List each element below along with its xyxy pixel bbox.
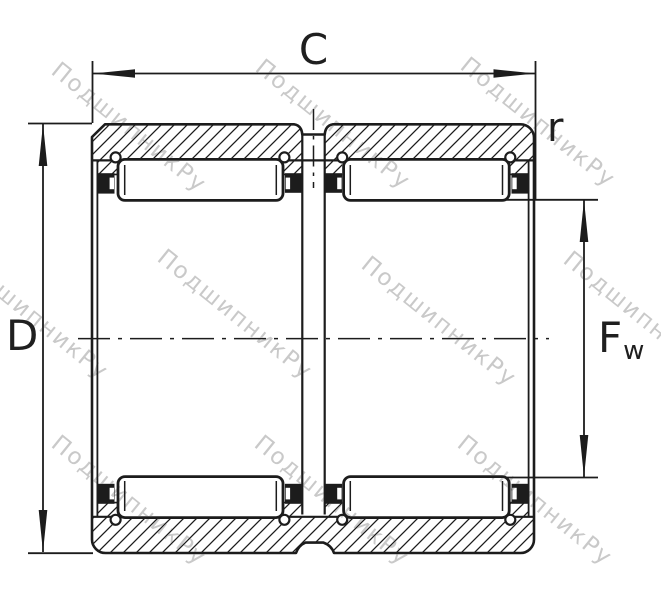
- needle-roller: [344, 159, 510, 200]
- bearing-cross-section-drawing: C D r Fw ПодшипникРу ПодшипникРу Подшипн…: [0, 0, 661, 605]
- arrowhead: [39, 124, 48, 166]
- dim-label-outer-diameter-D: D: [6, 311, 38, 360]
- arrowhead: [93, 69, 135, 77]
- needle-roller: [118, 477, 283, 518]
- arrowhead: [580, 435, 589, 477]
- needle-roller: [118, 159, 283, 200]
- arrowhead: [39, 510, 48, 552]
- dim-label-corner-radius-r: r: [547, 105, 564, 151]
- dim-label-raceway-diameter-Fw: Fw: [598, 313, 644, 366]
- technical-drawing-canvas: C D r Fw ПодшипникРу ПодшипникРу Подшипн…: [0, 0, 661, 605]
- arrowhead: [494, 69, 536, 77]
- arrowhead: [580, 200, 589, 242]
- needle-roller: [344, 477, 510, 518]
- bearing-section: [78, 109, 549, 553]
- dim-label-width-C: C: [299, 25, 328, 74]
